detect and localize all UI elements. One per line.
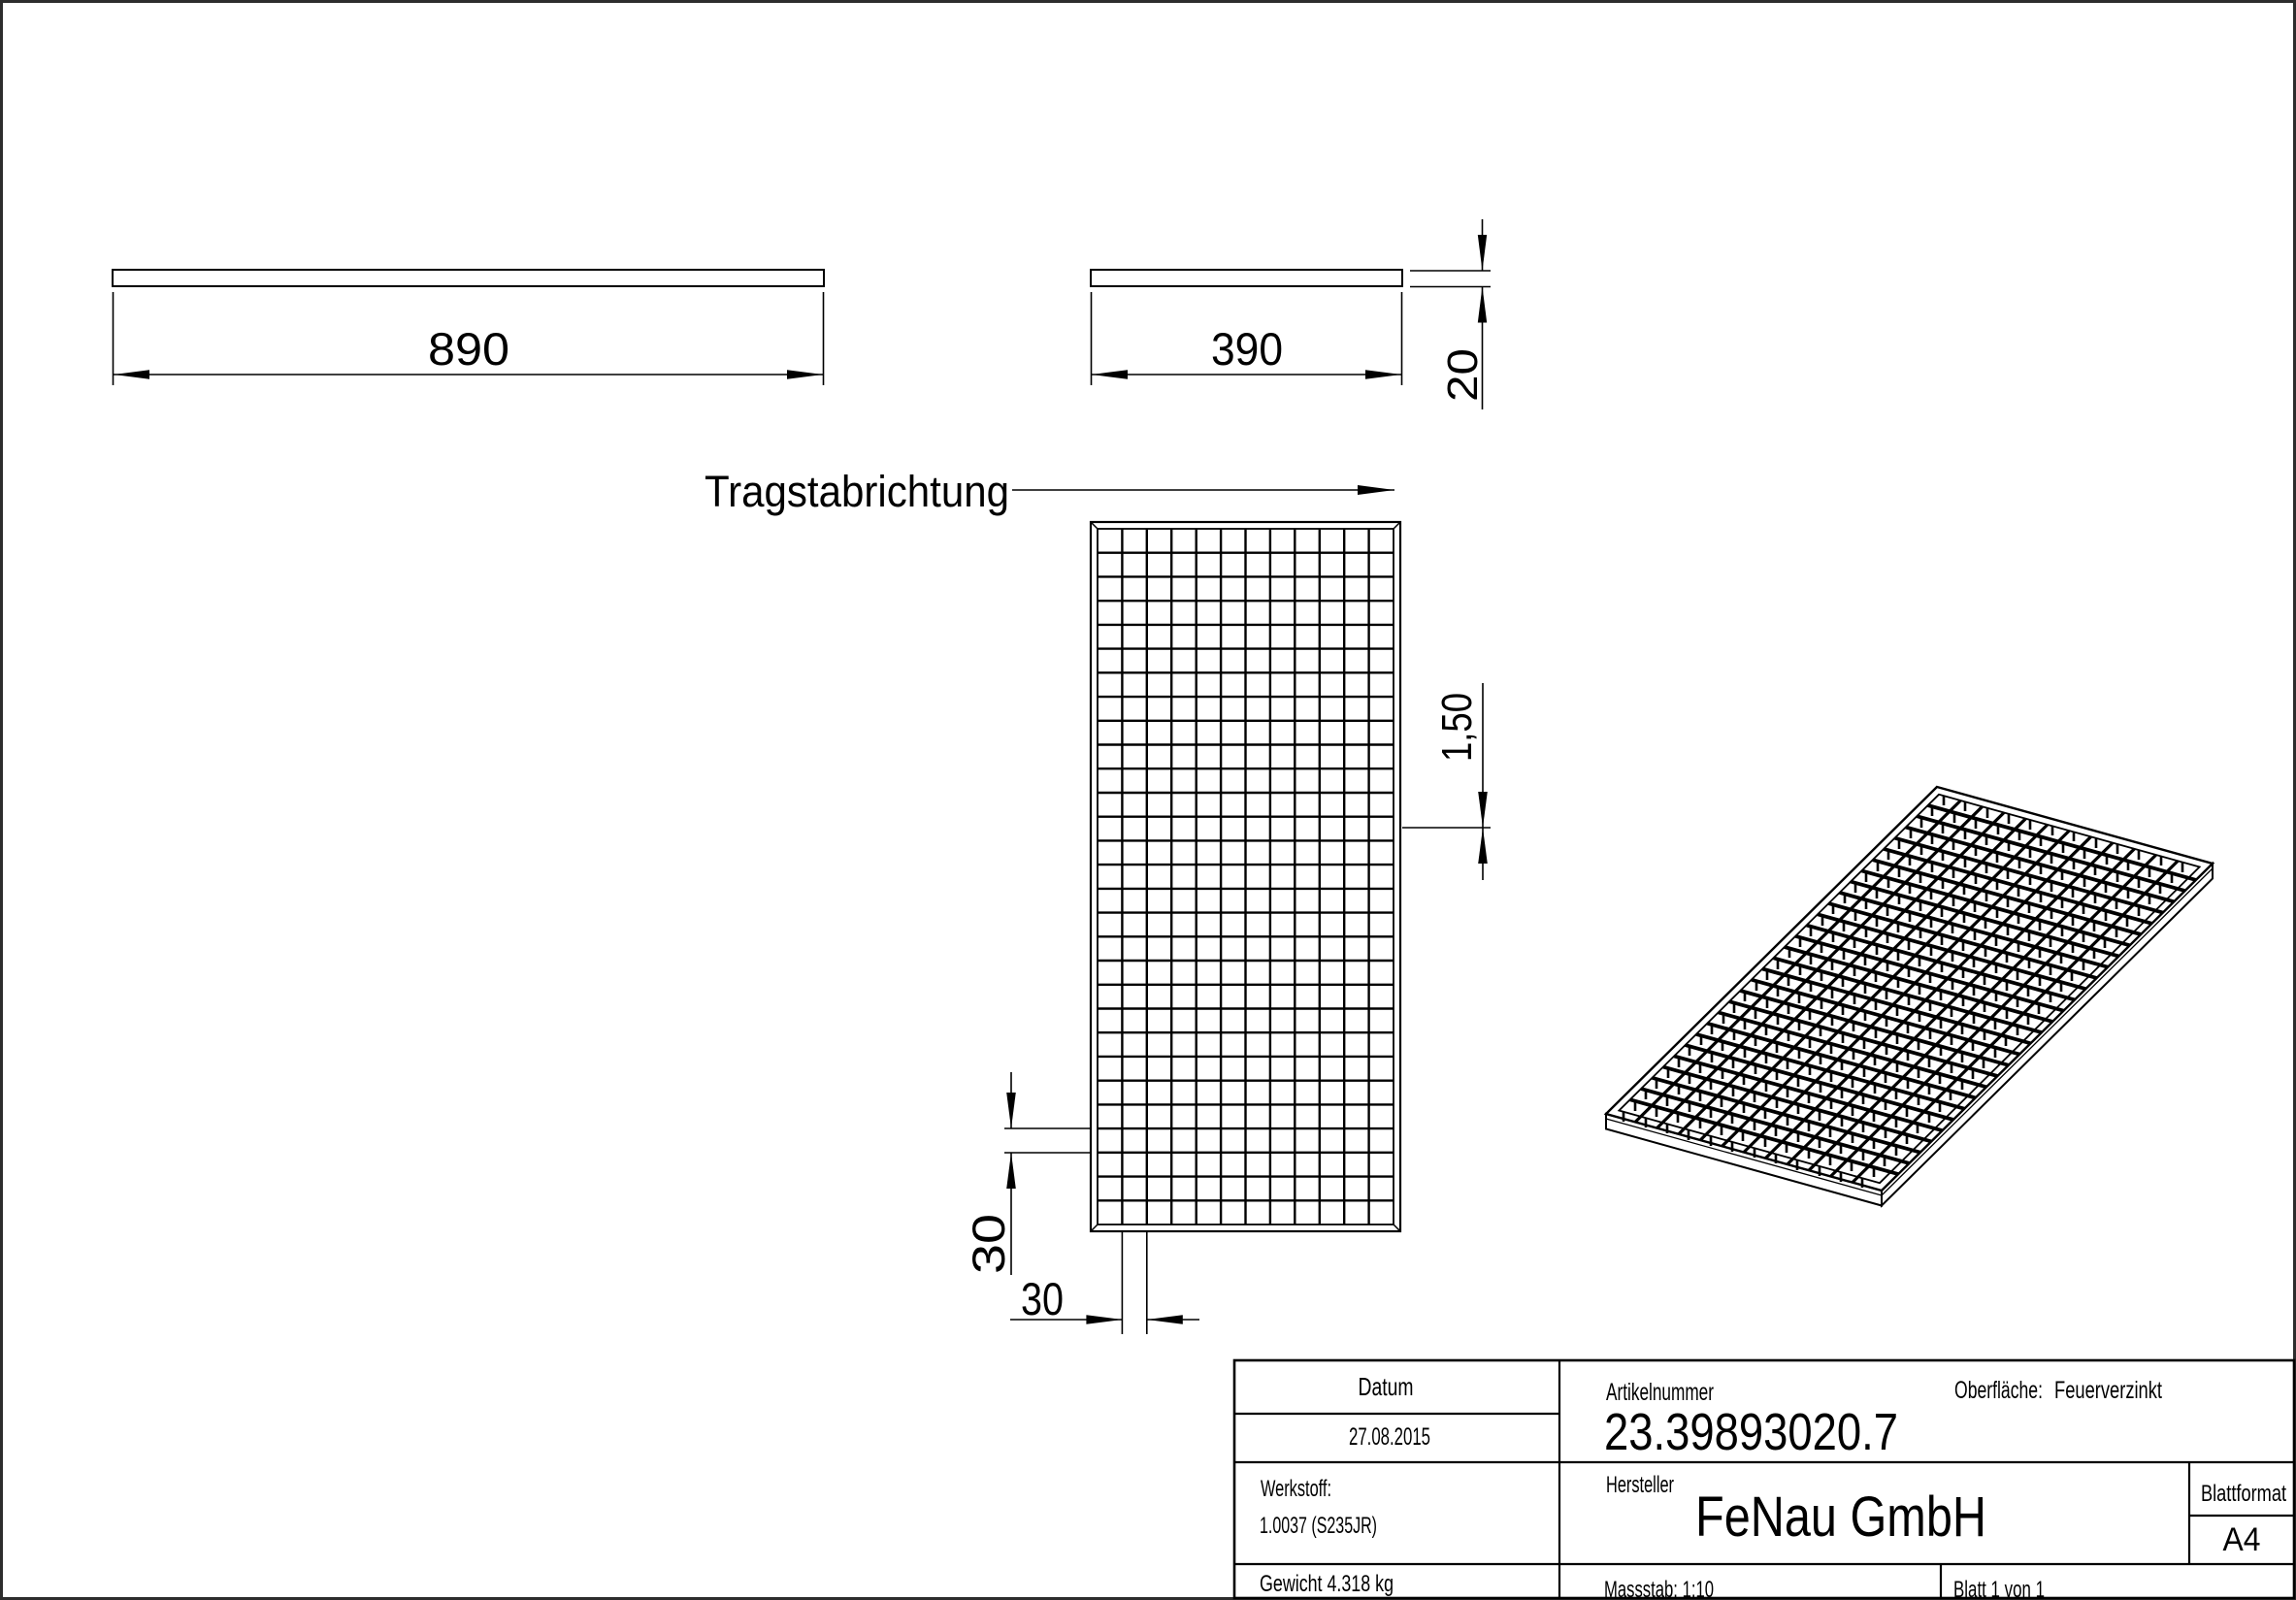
svg-text:Blatt 1 von 1: Blatt 1 von 1 bbox=[1953, 1577, 2045, 1600]
svg-text:Datum: Datum bbox=[1359, 1372, 1414, 1401]
svg-text:30: 30 bbox=[963, 1214, 1014, 1274]
svg-text:Hersteller: Hersteller bbox=[1606, 1472, 1674, 1498]
svg-text:390: 390 bbox=[1211, 323, 1283, 375]
svg-text:27.08.2015: 27.08.2015 bbox=[1349, 1423, 1430, 1451]
svg-text:1.0037 (S235JR): 1.0037 (S235JR) bbox=[1260, 1513, 1377, 1539]
svg-text:Oberfläche:: Oberfläche: bbox=[1954, 1377, 2043, 1404]
svg-text:890: 890 bbox=[428, 323, 509, 375]
svg-text:20: 20 bbox=[1439, 348, 1487, 402]
svg-text:Tragstabrichtung: Tragstabrichtung bbox=[705, 467, 1009, 516]
svg-text:Feuerverzinkt: Feuerverzinkt bbox=[2054, 1377, 2162, 1404]
svg-text:Werkstoff:: Werkstoff: bbox=[1261, 1476, 1331, 1502]
svg-text:1,50: 1,50 bbox=[1433, 693, 1481, 762]
svg-text:Artikelnummer: Artikelnummer bbox=[1606, 1379, 1714, 1406]
svg-text:Gewicht 4.318 kg: Gewicht 4.318 kg bbox=[1260, 1571, 1394, 1597]
svg-text:23.39893020.7: 23.39893020.7 bbox=[1604, 1403, 1898, 1461]
svg-text:30: 30 bbox=[1021, 1273, 1064, 1324]
svg-text:Blattformat: Blattformat bbox=[2201, 1481, 2286, 1507]
svg-text:A4: A4 bbox=[2223, 1521, 2261, 1558]
svg-text:Massstab: 1:10: Massstab: 1:10 bbox=[1604, 1577, 1714, 1600]
svg-text:FeNau GmbH: FeNau GmbH bbox=[1695, 1486, 1986, 1549]
